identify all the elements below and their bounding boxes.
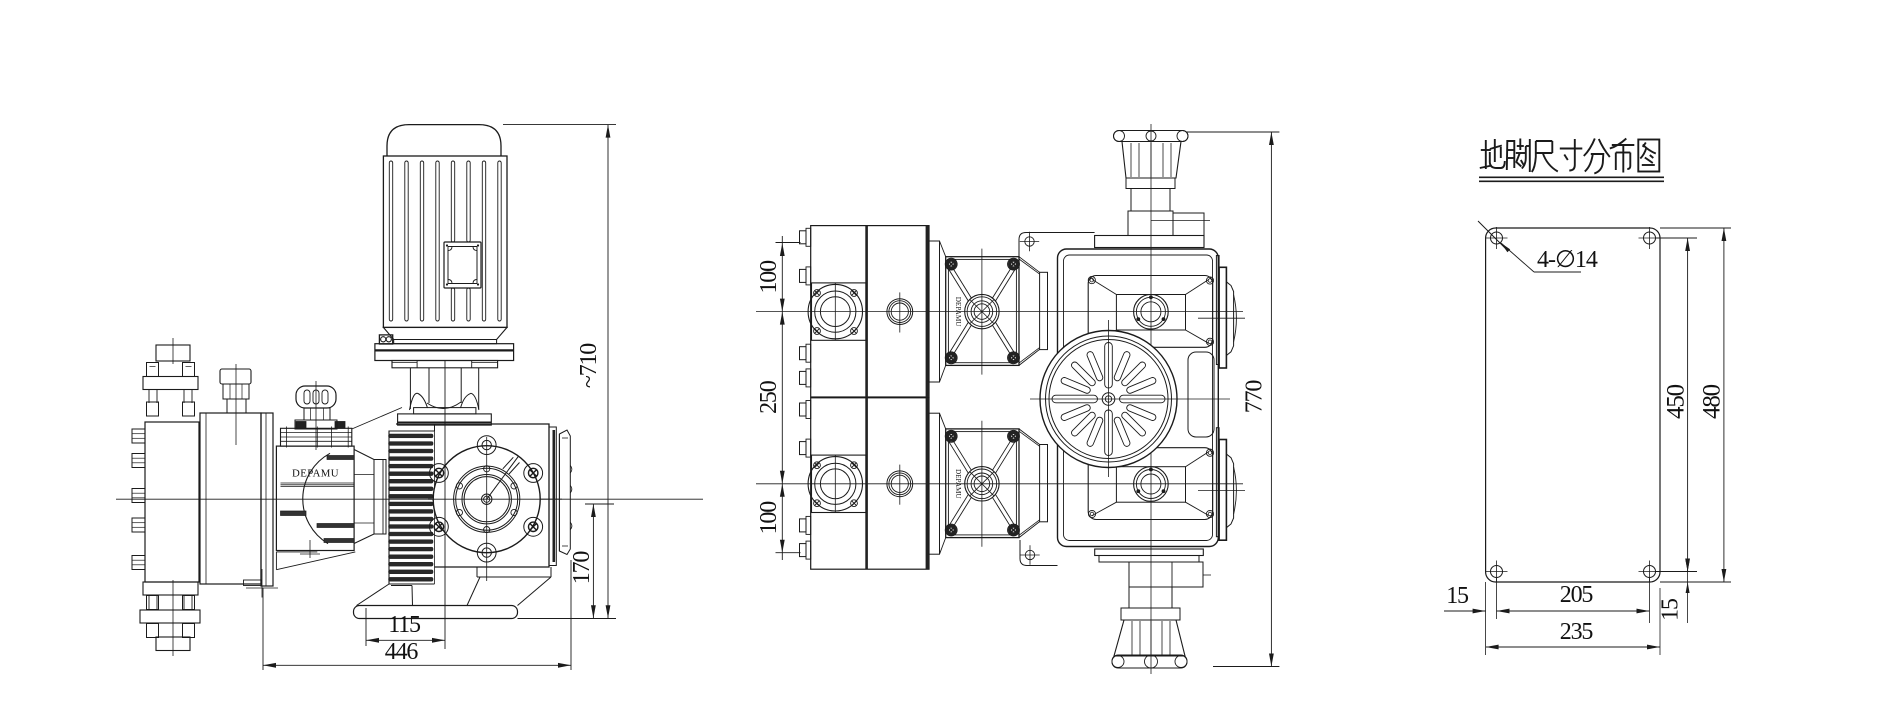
svg-text:DEPAMU: DEPAMU (954, 297, 962, 327)
svg-text:100: 100 (756, 501, 782, 535)
svg-text:~710: ~710 (576, 343, 602, 388)
svg-text:100: 100 (756, 260, 782, 294)
svg-text:205: 205 (1560, 582, 1594, 608)
svg-text:450: 450 (1663, 384, 1690, 419)
svg-text:DEPAMU: DEPAMU (292, 468, 339, 480)
svg-text:DEPAMU: DEPAMU (954, 469, 962, 499)
svg-text:480: 480 (1699, 384, 1726, 419)
svg-text:250: 250 (756, 380, 782, 414)
svg-text:446: 446 (385, 639, 419, 665)
svg-text:770: 770 (1242, 380, 1268, 414)
svg-text:235: 235 (1560, 619, 1594, 645)
svg-text:15: 15 (1658, 598, 1684, 621)
svg-text:170: 170 (569, 551, 595, 585)
svg-text:4-∅14: 4-∅14 (1537, 247, 1598, 273)
svg-text:15: 15 (1446, 583, 1469, 609)
svg-text:115: 115 (388, 612, 421, 638)
